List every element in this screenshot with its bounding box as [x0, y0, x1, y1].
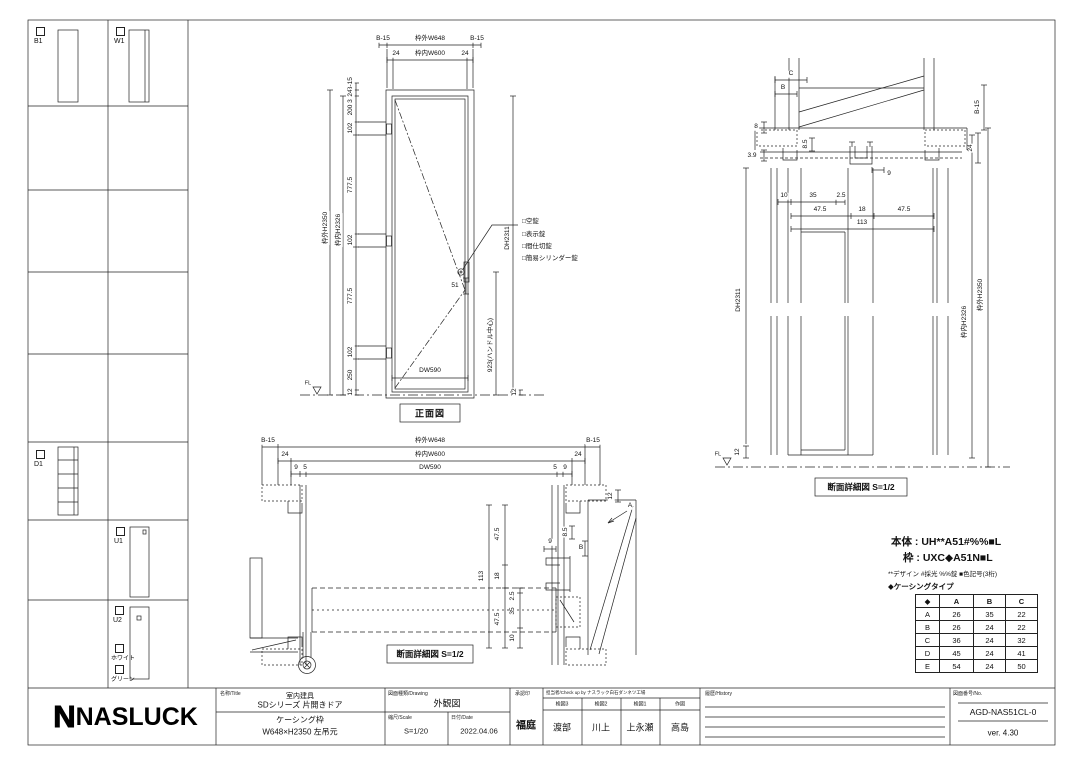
green-option-label: グリーン: [111, 677, 135, 683]
table-cell: 36: [940, 634, 974, 647]
spec-legend: **デザイン #採光 %%錠 ■色記号(3桁): [888, 568, 997, 578]
sidebar-item-u1: U1: [114, 538, 123, 545]
dim-label: 枠外H2350: [978, 278, 985, 312]
vsection-title: 断面詳細図 S=1/2: [827, 481, 894, 493]
table-cell: 22: [1006, 621, 1038, 634]
history-header: 履歴/History: [705, 690, 732, 697]
table-cell: 24: [974, 660, 1006, 673]
table-row: B 26 24 22: [916, 621, 1038, 634]
dim-label: 18: [495, 571, 502, 580]
dim-label: 枠内W600: [414, 452, 446, 459]
sidebar-item-u2: U2: [113, 617, 122, 624]
check-col: 作図: [675, 701, 685, 708]
lock-option-label: □空錠: [522, 219, 539, 226]
drawing-sheet: B1 W1 D1 U1 U2 ホワイト グリーン B-15 枠外W648 B-1…: [0, 0, 1080, 764]
table-cell: A: [916, 608, 940, 621]
table-cell: 24: [974, 621, 1006, 634]
dim-label: 枠外W648: [414, 36, 446, 43]
dim-label: 9: [293, 465, 299, 472]
dim-label: 923(ハンドル中心): [488, 317, 495, 373]
check-name: 川上: [592, 721, 610, 734]
title-line2: SDシリーズ 片開きドア: [258, 700, 343, 711]
dim-label: 51: [450, 283, 459, 290]
dim-label: DH2311: [736, 287, 743, 312]
dim-label: 24: [391, 51, 400, 58]
dim-label: 47.5: [897, 207, 912, 214]
white-checkbox[interactable]: [115, 644, 124, 653]
dim-label: DW590: [418, 368, 442, 375]
table-row: A 26 35 22: [916, 608, 1038, 621]
check-col: 検図1: [634, 701, 647, 708]
dim-label: 5: [302, 465, 308, 472]
dim-label: 24: [968, 143, 975, 152]
drawing-version: ver. 4.30: [988, 729, 1019, 738]
dim-label: B: [578, 545, 584, 552]
dim-label: 9: [547, 539, 553, 546]
dim-label: 777.5: [348, 176, 355, 194]
approval-header: 承認印: [515, 690, 530, 697]
w1-checkbox[interactable]: [116, 27, 125, 36]
dim-label: 47.5: [813, 207, 828, 214]
table-cell: 54: [940, 660, 974, 673]
dim-label: 5: [552, 465, 558, 472]
dim-label: 35: [510, 606, 517, 615]
drawing-no-header: 図面番号/No.: [953, 690, 982, 697]
dim-label: 9: [886, 171, 892, 178]
fl-marker-label: FL: [714, 452, 722, 458]
table-header: C: [1006, 595, 1038, 608]
spec-frame-code: 枠 : UXC◆A51N■L: [903, 550, 993, 565]
table-cell: 24: [974, 634, 1006, 647]
drawing-no: AGD-NAS51CL-0: [970, 707, 1037, 717]
table-cell: C: [916, 634, 940, 647]
u1-checkbox[interactable]: [116, 527, 125, 536]
dim-label: 102: [348, 122, 355, 135]
dim-label: 10: [510, 633, 517, 642]
dim-label: A: [627, 503, 633, 510]
dim-label: 9: [562, 465, 568, 472]
lock-option-label: □間仕切錠: [522, 244, 552, 251]
dim-label: 102: [348, 234, 355, 247]
dim-label: 枠内H2326: [336, 213, 343, 247]
dim-label: 8: [753, 124, 759, 131]
u2-checkbox[interactable]: [115, 606, 124, 615]
dim-label: 12: [512, 387, 519, 396]
dim-label: B-15: [975, 99, 982, 115]
dim-label: 2.5: [510, 590, 517, 601]
approval-name: 福庭: [516, 717, 536, 732]
table-row: D 45 24 41: [916, 647, 1038, 660]
lock-option-label: □表示錠: [522, 232, 545, 239]
dim-label: 3.9: [746, 153, 757, 160]
table-row: E 54 24 50: [916, 660, 1038, 673]
dim-label: 18: [857, 207, 866, 214]
dim-label: 12: [348, 387, 355, 396]
green-checkbox[interactable]: [115, 665, 124, 674]
dim-label: 777.5: [348, 287, 355, 305]
front-view-title: 正面図: [415, 407, 445, 420]
dim-label: 2.5: [835, 193, 846, 200]
table-cell: 32: [1006, 634, 1038, 647]
dim-label: 12: [608, 491, 615, 500]
table-header: A: [940, 595, 974, 608]
table-cell: B: [916, 621, 940, 634]
dim-label: 12: [735, 447, 742, 456]
check-header: 担当者/Check up by ナスラック白石ダンネツ工場: [546, 690, 645, 696]
title-line3: ケーシング枠: [276, 715, 324, 726]
spec-casing-type: ◆ケーシングタイプ: [888, 581, 954, 592]
table-row: ◆ A B C: [916, 595, 1038, 608]
white-option-label: ホワイト: [111, 656, 135, 662]
b1-checkbox[interactable]: [36, 27, 45, 36]
table-cell: 45: [940, 647, 974, 660]
dim-label: DH2311: [505, 225, 512, 250]
dim-label: B-15: [469, 36, 485, 43]
dim-label: 8.5: [563, 526, 570, 537]
table-cell: 35: [974, 608, 1006, 621]
check-name: 高島: [671, 721, 689, 734]
table-cell: D: [916, 647, 940, 660]
spec-body-code: 本体 : UH**A51#%%■L: [891, 534, 1001, 549]
sidebar-item-w1: W1: [114, 38, 125, 45]
table-cell: 26: [940, 608, 974, 621]
dim-label: 113: [479, 570, 486, 582]
check-col: 検図3: [556, 701, 569, 708]
casing-size-table: ◆ A B C A 26 35 22 B 26 24 22 C 36 24 32…: [915, 594, 1038, 673]
table-header: ◆: [916, 595, 940, 608]
dim-label: 35: [808, 193, 817, 200]
table-cell: 24: [974, 647, 1006, 660]
scale-header: 縮尺/Scale: [388, 714, 412, 721]
dim-label: 10: [779, 193, 788, 200]
dim-label: 24: [280, 452, 289, 459]
dim-label: 枠内H2326: [962, 305, 969, 339]
dim-label: 枠外W648: [414, 438, 446, 445]
date-value: 2022.04.06: [460, 727, 498, 736]
sidebar-item-d1: D1: [34, 461, 43, 468]
dim-label: 113: [856, 220, 868, 227]
dim-label: 24: [573, 452, 582, 459]
hsection-title: 断面詳細図 S=1/2: [396, 648, 463, 660]
dim-label: 47.5: [495, 612, 502, 627]
table-header: B: [974, 595, 1006, 608]
dim-label: 24: [348, 88, 355, 97]
dim-label: B-15: [585, 438, 601, 445]
table-cell: E: [916, 660, 940, 673]
dim-label: 200: [348, 104, 355, 117]
dim-label: 8.5: [803, 138, 810, 149]
dim-label: B-15: [260, 438, 276, 445]
lock-option-label: □簡易シリンダー錠: [522, 256, 578, 263]
title-line4: W648×H2350 左吊元: [262, 727, 337, 738]
dim-label: C: [788, 71, 795, 78]
dim-label: 24: [460, 51, 469, 58]
table-cell: 26: [940, 621, 974, 634]
dim-label: B-15: [375, 36, 391, 43]
check-col: 検図2: [595, 701, 608, 708]
table-cell: 41: [1006, 647, 1038, 660]
check-name: 渡部: [553, 721, 571, 734]
dim-label: 102: [348, 346, 355, 359]
dim-label: 枠外H2350: [323, 211, 330, 245]
title-header: 名称/Title: [220, 690, 241, 697]
company-logo: NNASLUCK: [58, 698, 193, 736]
drawing-name: 外観図: [433, 697, 460, 710]
scale-value: S=1/20: [404, 727, 428, 736]
dim-label: 枠内W600: [414, 51, 446, 58]
table-cell: 22: [1006, 608, 1038, 621]
drawing-header: 図面種類/Drawing: [388, 690, 428, 697]
table-cell: 50: [1006, 660, 1038, 673]
check-name: 上永瀬: [626, 721, 653, 734]
sidebar-item-b1: B1: [34, 38, 43, 45]
date-header: 日付/Date: [451, 714, 473, 721]
dim-label: 250: [348, 369, 355, 382]
dim-label: DW590: [418, 465, 442, 472]
dim-label: 47.5: [495, 527, 502, 542]
logo-text: NASLUCK: [76, 703, 198, 732]
fl-marker-label: FL: [304, 381, 312, 387]
dim-label: B: [780, 85, 786, 92]
d1-checkbox[interactable]: [36, 450, 45, 459]
table-row: C 36 24 32: [916, 634, 1038, 647]
